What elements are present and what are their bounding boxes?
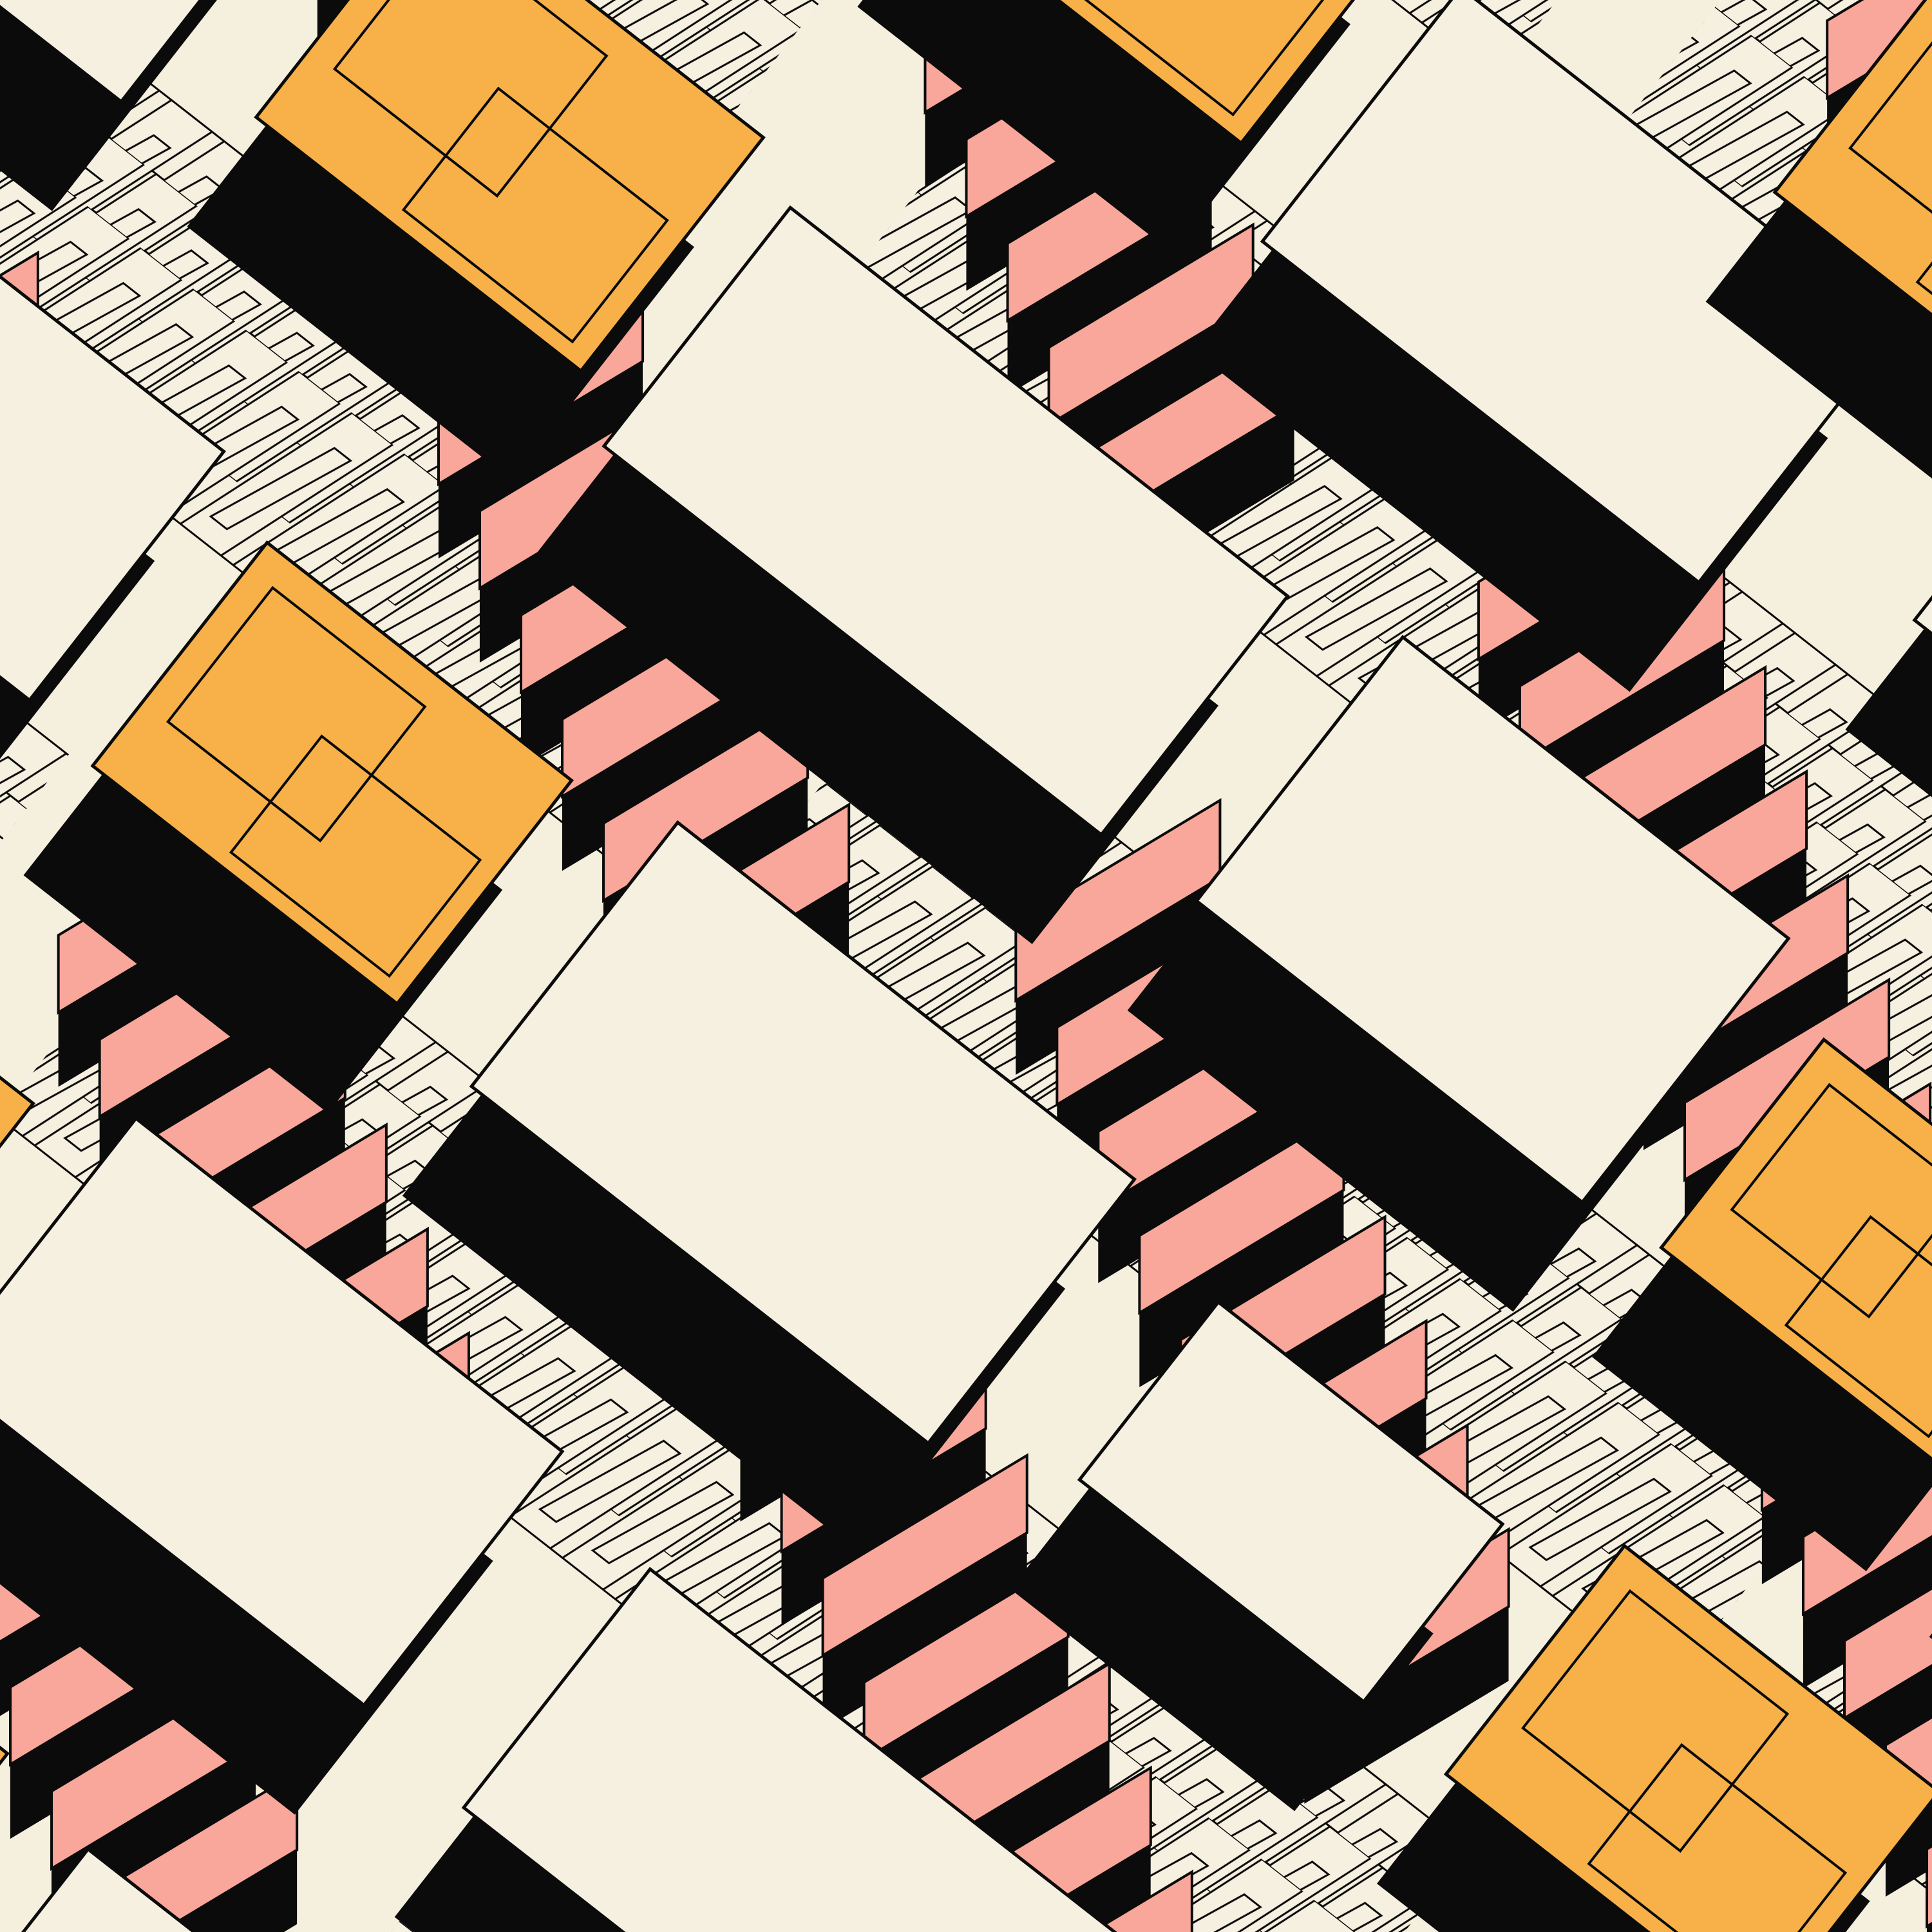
rotated-scene: [0, 0, 1932, 1932]
generative-artwork: [0, 0, 1932, 1932]
art-canvas: [0, 0, 1932, 1932]
